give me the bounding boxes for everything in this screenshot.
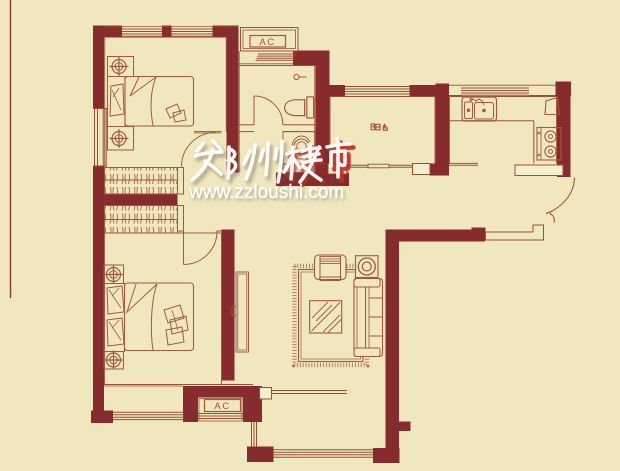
svg-text:AC: AC xyxy=(259,37,275,48)
svg-text:AC: AC xyxy=(214,401,230,412)
svg-text:www.zzloushi.com: www.zzloushi.com xyxy=(188,182,344,203)
